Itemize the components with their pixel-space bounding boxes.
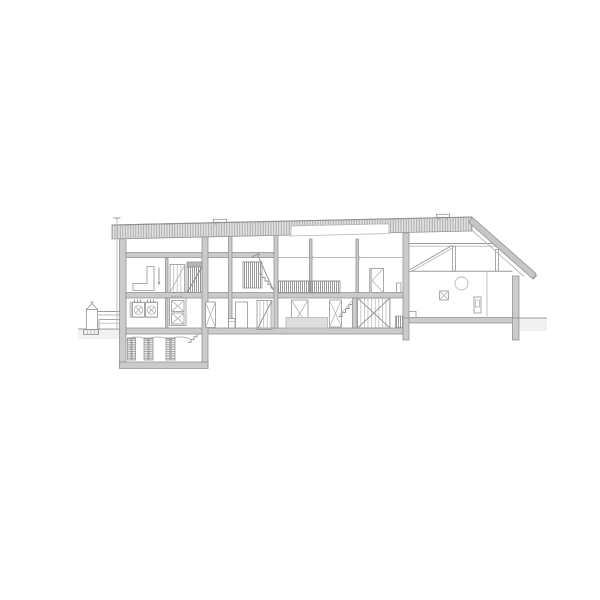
hall-door-2 xyxy=(330,300,342,327)
storage-piers xyxy=(128,338,176,360)
appliance-stack xyxy=(170,296,187,326)
washing-machine-1 xyxy=(133,303,145,318)
panel-door-upper xyxy=(170,265,185,293)
braced-door-b xyxy=(257,301,272,330)
ground-floor xyxy=(130,296,403,330)
shaft-door xyxy=(187,262,202,293)
right-wall-foundation xyxy=(513,318,520,340)
skylight-strip xyxy=(291,224,389,236)
laundry xyxy=(130,300,159,319)
stair-balustrade xyxy=(243,262,262,288)
room-divider-lower xyxy=(166,298,169,328)
pier-strip xyxy=(166,338,170,360)
basement-floor-slab xyxy=(120,362,209,369)
mezzanine-guardrail xyxy=(278,281,340,293)
braced-door-a xyxy=(206,302,216,328)
door-leaf xyxy=(236,302,248,328)
room-divider-upper xyxy=(166,258,169,293)
wc xyxy=(229,319,236,329)
hatched-box xyxy=(396,316,403,328)
right-floor-slab xyxy=(409,318,513,324)
washing-machine-2 xyxy=(146,303,158,318)
casement-window xyxy=(370,269,384,293)
hall-wall-lower xyxy=(353,298,358,328)
wall-d-foundation xyxy=(403,318,409,340)
exterior-wall-right xyxy=(513,276,520,318)
interior-wall-c xyxy=(274,235,278,328)
hatched-plinth xyxy=(84,330,99,335)
wall-panel xyxy=(474,297,481,313)
barn-door-x-braced xyxy=(358,298,391,328)
interior-wall-b xyxy=(229,235,233,328)
interior-wall-d xyxy=(403,233,409,318)
pier-strip xyxy=(132,338,136,360)
step-block xyxy=(409,312,416,318)
ground-fill-right xyxy=(519,318,547,331)
platform xyxy=(99,320,120,330)
pier-strip xyxy=(128,338,132,360)
pier-strip xyxy=(149,338,153,360)
mid-floor-slab xyxy=(126,293,407,299)
tank-body xyxy=(87,310,98,330)
hall-counter xyxy=(286,318,328,329)
section-svg xyxy=(0,0,600,600)
exterior-wall-left xyxy=(120,237,127,368)
radiator xyxy=(397,283,402,293)
architectural-section-drawing xyxy=(0,0,600,600)
pier-strip xyxy=(144,338,148,360)
pier-strip xyxy=(171,338,175,360)
x-window xyxy=(440,291,449,300)
hall-post-2 xyxy=(356,239,359,293)
king-post xyxy=(453,246,456,271)
